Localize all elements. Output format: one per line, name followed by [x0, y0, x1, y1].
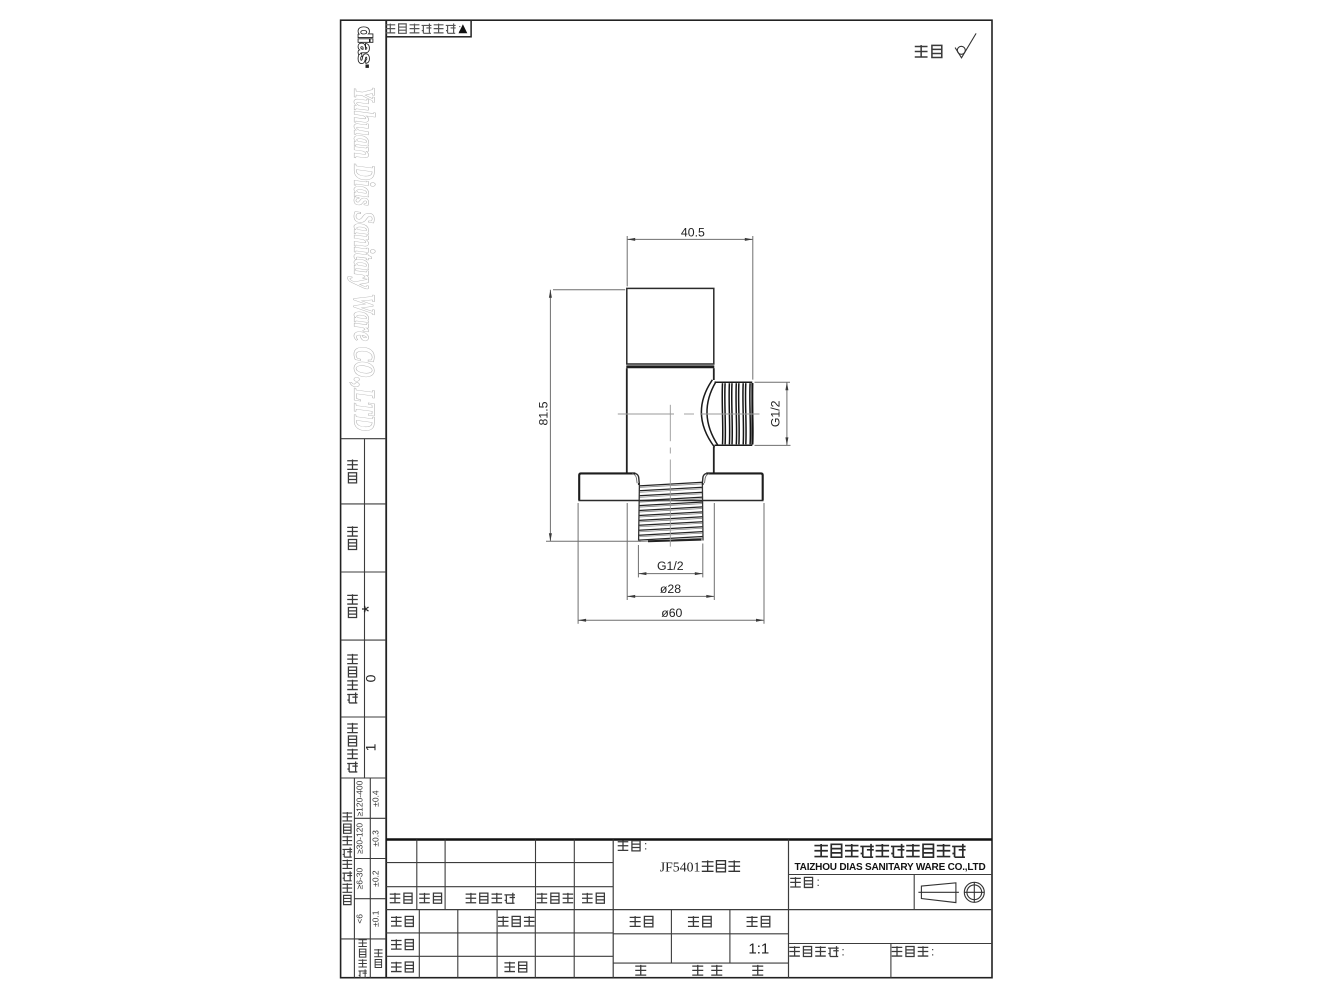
- svg-text:1: 1: [362, 743, 378, 751]
- svg-text:<6: <6: [355, 914, 365, 924]
- svg-text:*: *: [359, 605, 380, 613]
- svg-text:ø60: ø60: [661, 606, 682, 620]
- svg-text:81.5: 81.5: [537, 401, 551, 425]
- svg-text:≥30-120: ≥30-120: [355, 823, 365, 854]
- svg-text:±0.1: ±0.1: [370, 910, 380, 927]
- svg-text::: :: [931, 944, 934, 958]
- svg-text:±0.4: ±0.4: [370, 790, 380, 807]
- svg-text:ø28: ø28: [660, 582, 681, 596]
- svg-text::: :: [841, 944, 844, 958]
- svg-text::: :: [817, 875, 820, 889]
- svg-text:±0.3: ±0.3: [370, 830, 380, 847]
- svg-text:0: 0: [362, 674, 378, 682]
- svg-text::: :: [644, 839, 647, 853]
- svg-text:dias: dias: [354, 26, 376, 64]
- svg-text:JF5401: JF5401: [660, 860, 701, 875]
- svg-text:Yuhuan Dias Sanitary Ware CO.,: Yuhuan Dias Sanitary Ware CO.,LTD: [348, 87, 381, 431]
- svg-text:TAIZHOU DIAS SANITARY WARE CO.: TAIZHOU DIAS SANITARY WARE CO.,LTD: [795, 862, 986, 873]
- svg-text:G1/2: G1/2: [768, 400, 782, 427]
- svg-text:≥120-400: ≥120-400: [355, 780, 365, 816]
- svg-text:±0.2: ±0.2: [370, 870, 380, 887]
- svg-text:40.5: 40.5: [681, 226, 705, 240]
- svg-text:1:1: 1:1: [748, 941, 769, 958]
- svg-text:≥6-30: ≥6-30: [355, 867, 365, 889]
- svg-text:G1/2: G1/2: [657, 559, 684, 573]
